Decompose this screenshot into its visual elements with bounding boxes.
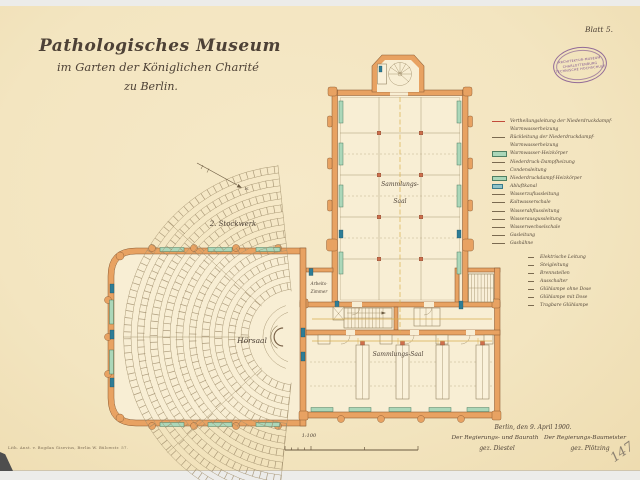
legend-sub-item-label: Steigleitung — [540, 263, 568, 268]
stamp-line-3: TECHNISCHE HOCHSCHULE — [555, 64, 605, 75]
north-arrow — [197, 163, 242, 188]
stamp-line-2: CHARLOTTENBURG — [562, 60, 597, 69]
legend-swatch — [492, 162, 507, 163]
legend-item: Warmwasser-Heizkörper — [492, 150, 612, 158]
legend-item-label: Wasserwechselschale — [510, 225, 560, 230]
legend-sub-item-label: Ausschalter — [540, 279, 568, 284]
legend-sub-item: Ausschalter — [528, 277, 591, 285]
legend-swatch — [492, 121, 507, 122]
legend-item: Wasserwechselschale — [492, 223, 612, 231]
legend-item-label: Niederdruckdampf-Heizkörper — [510, 176, 582, 181]
legend-item: Gasleitung — [492, 232, 612, 240]
legend-item-label: Warmwasserheizung — [510, 143, 558, 148]
signature-left-name: gez. Diestel — [479, 446, 515, 452]
legend-item: Abluftkanal — [492, 183, 612, 191]
legend-item: Wasserausgussleitung — [492, 215, 612, 223]
legend-item-label: Wasserausgussleitung — [510, 217, 562, 222]
legend-item-label: Gashähne — [510, 241, 533, 246]
legend-item-label: Wasserabflussleitung — [510, 209, 559, 214]
scale-bar — [285, 446, 418, 450]
page-title: Pathologisches Museum — [39, 38, 281, 55]
legend-swatch — [492, 211, 507, 212]
signature-right-name: gez. Plötzing — [570, 446, 609, 452]
legend-swatch — [528, 257, 537, 258]
legend-item-label: Warmwasserheizung — [510, 127, 558, 132]
stamp-line-1: ARCHITEKTUR-MUSEUM — [558, 55, 601, 65]
north-label: N. — [245, 187, 250, 191]
legend-swatch — [528, 297, 537, 298]
legend-item: Gashähne — [492, 240, 612, 248]
room-label-auditorium: Hörsaal — [237, 337, 267, 345]
legend-item: Wasserzuflussleitung — [492, 191, 612, 199]
room-label-upper-hall-2: Saal — [393, 199, 406, 205]
legend-sub-item: Elektrische Leitung — [528, 253, 591, 261]
legend-item-label: Condensleitung — [510, 168, 547, 173]
legend-sub-item-label: Tragbare Glühlampe — [540, 303, 588, 308]
legend-swatch — [528, 273, 537, 274]
room-label-annex-1: Arbeits- — [311, 282, 328, 286]
legend-sub-item-label: Glühlampe ohne Dose — [540, 287, 591, 292]
legend-swatch — [492, 184, 507, 190]
signature-left-title: Der Regierungs- und Baurath — [452, 436, 539, 442]
floor-label: 2. Stockwerk — [210, 221, 257, 228]
legend-swatch — [528, 289, 537, 290]
legend-item-label: Wasserzuflussleitung — [510, 192, 559, 197]
room-label-upper-hall-1: Sammlungs- — [381, 182, 419, 188]
legend-swatch — [528, 305, 537, 306]
legend-item-label: Gasleitung — [510, 233, 535, 238]
legend-item-label: Vertheilungsleitung der Niederdruckdampf… — [510, 119, 612, 124]
sheet-number: Blatt 5. — [585, 26, 613, 34]
legend-item: Warmwasserheizung — [492, 125, 612, 133]
legend-swatch — [492, 243, 507, 244]
legend-item: Rückleitung der Niederdruckdampf- — [492, 133, 612, 141]
stair-tower — [372, 55, 424, 92]
legend-sub-item: Brennstellen — [528, 269, 591, 277]
signature-right-title: Der Regierungs-Baumeister — [544, 436, 626, 442]
signature-date: Berlin, den 9. April 1900. — [494, 425, 571, 431]
legend-sub-item: Steigleitung — [528, 261, 591, 269]
legend-sub-item-label: Brennstellen — [540, 271, 570, 276]
printer-imprint: Lith. Anst. v. Bogdan Gisevius, Berlin W… — [8, 446, 128, 450]
legend-swatch — [492, 137, 507, 138]
legend-swatch — [492, 170, 507, 171]
legend-sub-item: Tragbare Glühlampe — [528, 301, 591, 309]
legend: Vertheilungsleitung der Niederdruckdampf… — [492, 117, 612, 248]
legend-sub-item-label: Elektrische Leitung — [540, 255, 586, 260]
scanned-plan-sheet: Pathologisches Museum im Garten der Köni… — [0, 0, 640, 480]
legend-item-label: Rückleitung der Niederdruckdampf- — [510, 135, 595, 140]
legend-swatch — [492, 219, 507, 220]
page-subtitle: im Garten der Königlichen Charité — [57, 62, 259, 74]
legend-swatch — [492, 151, 507, 157]
legend-item-label: Niederdruck-Dampfheizung — [510, 160, 575, 165]
legend-swatch — [492, 176, 507, 182]
legend-swatch — [492, 235, 507, 236]
legend-item: Niederdruckdampf-Heizkörper — [492, 174, 612, 182]
legend-item: Condensleitung — [492, 166, 612, 174]
legend-item-label: Abluftkanal — [510, 184, 537, 189]
room-label-right-hall: Sammlungs-Saal — [373, 352, 424, 358]
legend-item-label: Kaltwasserschale — [510, 200, 551, 205]
legend-swatch — [528, 265, 537, 266]
legend-swatch — [492, 194, 507, 195]
legend-item-label: Warmwasser-Heizkörper — [510, 151, 568, 156]
legend-item: Vertheilungsleitung der Niederdruckdampf… — [492, 117, 612, 125]
legend-sub-list: Elektrische Leitung Steigleitung Brennst… — [528, 253, 591, 309]
legend-item: Warmwasserheizung — [492, 142, 612, 150]
scale-label: 1:100 — [302, 434, 316, 439]
room-label-annex-2: Zimmer — [311, 290, 328, 294]
legend-sub-item: Glühlampe ohne Dose — [528, 285, 591, 293]
legend-item: Wasserabflussleitung — [492, 207, 612, 215]
legend-swatch — [492, 227, 507, 228]
legend-item: Niederdruck-Dampfheizung — [492, 158, 612, 166]
legend-swatch — [492, 202, 507, 203]
legend-sub-item: Glühlampe mit Dose — [528, 293, 591, 301]
page-subtitle-2: zu Berlin. — [124, 81, 178, 92]
legend-sub-item-label: Glühlampe mit Dose — [540, 295, 587, 300]
legend-item: Kaltwasserschale — [492, 199, 612, 207]
legend-swatch — [528, 281, 537, 282]
